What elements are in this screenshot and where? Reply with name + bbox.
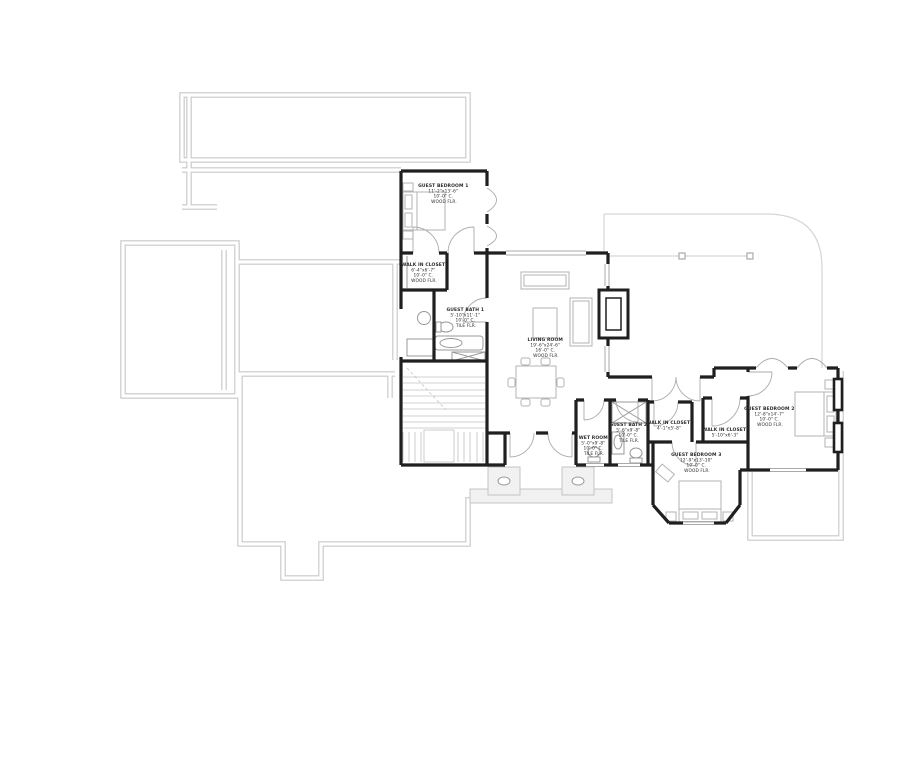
pillow (405, 195, 412, 209)
patio-column (679, 253, 685, 259)
fixture-marker (418, 312, 431, 325)
room-label-guest-bedroom-2: GUEST BEDROOM 2 12'-8"x14'-7" 10'-0" C. … (744, 406, 796, 428)
nightstand (403, 183, 413, 191)
dresser (656, 464, 675, 482)
dining-table (516, 366, 556, 398)
room-label-walk-in-closet-1: WALK IN CLOSET 6'-4"x6'-7" 10'-0" C. WOO… (401, 262, 446, 284)
pillow (702, 512, 717, 519)
nightstand (403, 231, 413, 239)
room-label-living-room: LIVING ROOM 19'-6"x24'-6" 16'-0" C. WOOD… (528, 337, 565, 359)
coffee-table (533, 308, 557, 338)
footing-marker (498, 477, 510, 485)
window-frame (834, 423, 842, 452)
pillow (683, 512, 698, 519)
bench (407, 339, 434, 356)
guest-bedroom-2-furniture (795, 380, 836, 447)
patio-outline (604, 214, 822, 368)
terrace-steps (470, 467, 612, 503)
stair-direction-arrow (407, 368, 446, 410)
room-label-wet-room: WET ROOM 5'-0"x9'-8" 10'-0" C. TILE FLR. (579, 435, 610, 457)
pillow (405, 213, 412, 227)
footing-marker (572, 477, 584, 485)
staircase (403, 368, 485, 462)
chair (541, 399, 550, 406)
room-label-walk-in-closet-2: WALK IN CLOSET 4'-1"x5'-8" (646, 420, 691, 431)
room-label-guest-bedroom-3: GUEST BEDROOM 3 12'-9"x13'-10" 10'-0" C.… (671, 452, 723, 474)
window-frame (834, 379, 842, 410)
room-label-walk-in-closet-3: WALK IN CLOSET 5'-10"x6'-3" (702, 427, 747, 438)
chair (557, 378, 564, 387)
floor-plan-drawing: GUEST BEDROOM 1 11'-2"x13'-6" 10'-0" C. … (0, 0, 921, 768)
toilet (630, 448, 642, 458)
chair (521, 358, 530, 365)
chair (508, 378, 515, 387)
patio-column (747, 253, 753, 259)
floor-plan-page: GUEST BEDROOM 1 11'-2"x13'-6" 10'-0" C. … (0, 0, 921, 768)
chair (541, 358, 550, 365)
chair (521, 399, 530, 406)
